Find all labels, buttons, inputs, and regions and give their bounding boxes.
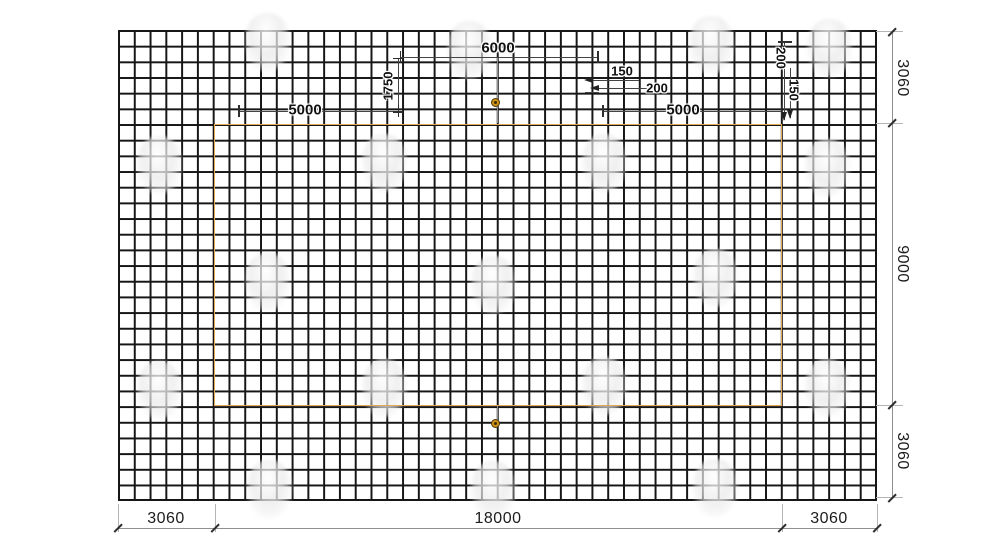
- spacing-text-200r: 200: [775, 47, 788, 69]
- spacing-line-200: [597, 88, 649, 89]
- dim-tick: [393, 111, 403, 113]
- dim-line-bottom: [118, 528, 877, 529]
- arrow-left-icon: [584, 77, 593, 83]
- dim-tick: [602, 105, 604, 117]
- dim-text-5000-left: 5000: [288, 103, 321, 118]
- spacing-text-150: 150: [611, 65, 633, 78]
- dim-text-bottom-3060-right: 3060: [810, 511, 848, 527]
- spacing-text-150r: 150: [788, 79, 801, 101]
- dim-tick: [238, 105, 240, 117]
- dim-text-bottom-18000: 18000: [475, 511, 522, 527]
- dim-line-6000: [400, 57, 598, 58]
- marker-node-bottom: [492, 420, 499, 427]
- dim-text-6000: 6000: [481, 41, 514, 56]
- arrow-left-icon: [590, 85, 599, 91]
- dim-tick: [597, 51, 599, 63]
- dim-text-1750: 1750: [382, 72, 395, 101]
- spacing-stub: [585, 92, 599, 93]
- dim-text-5000-right: 5000: [666, 103, 699, 118]
- spacing-line-150: [592, 80, 639, 81]
- dim-tick: [888, 494, 897, 503]
- center-leader-top: [497, 58, 498, 123]
- inner-outline: [214, 124, 782, 406]
- arrow-down-icon: [787, 110, 793, 119]
- dim-text-right-3060-bottom: 3060: [894, 432, 910, 470]
- spacing-text-200: 200: [646, 82, 668, 95]
- drawing-canvas: 6000 5000 5000 1750 150 200 200 150 3060…: [0, 0, 1000, 560]
- dim-text-bottom-3060-left: 3060: [147, 511, 185, 527]
- dim-tick: [393, 58, 403, 60]
- marker-node-top: [492, 99, 499, 106]
- dim-line-right: [892, 32, 893, 498]
- dim-text-right-3060-top: 3060: [894, 59, 910, 97]
- dim-text-right-9000: 9000: [894, 245, 910, 283]
- spacing-top-tick: [778, 41, 792, 43]
- dim-line-1750: [398, 58, 399, 112]
